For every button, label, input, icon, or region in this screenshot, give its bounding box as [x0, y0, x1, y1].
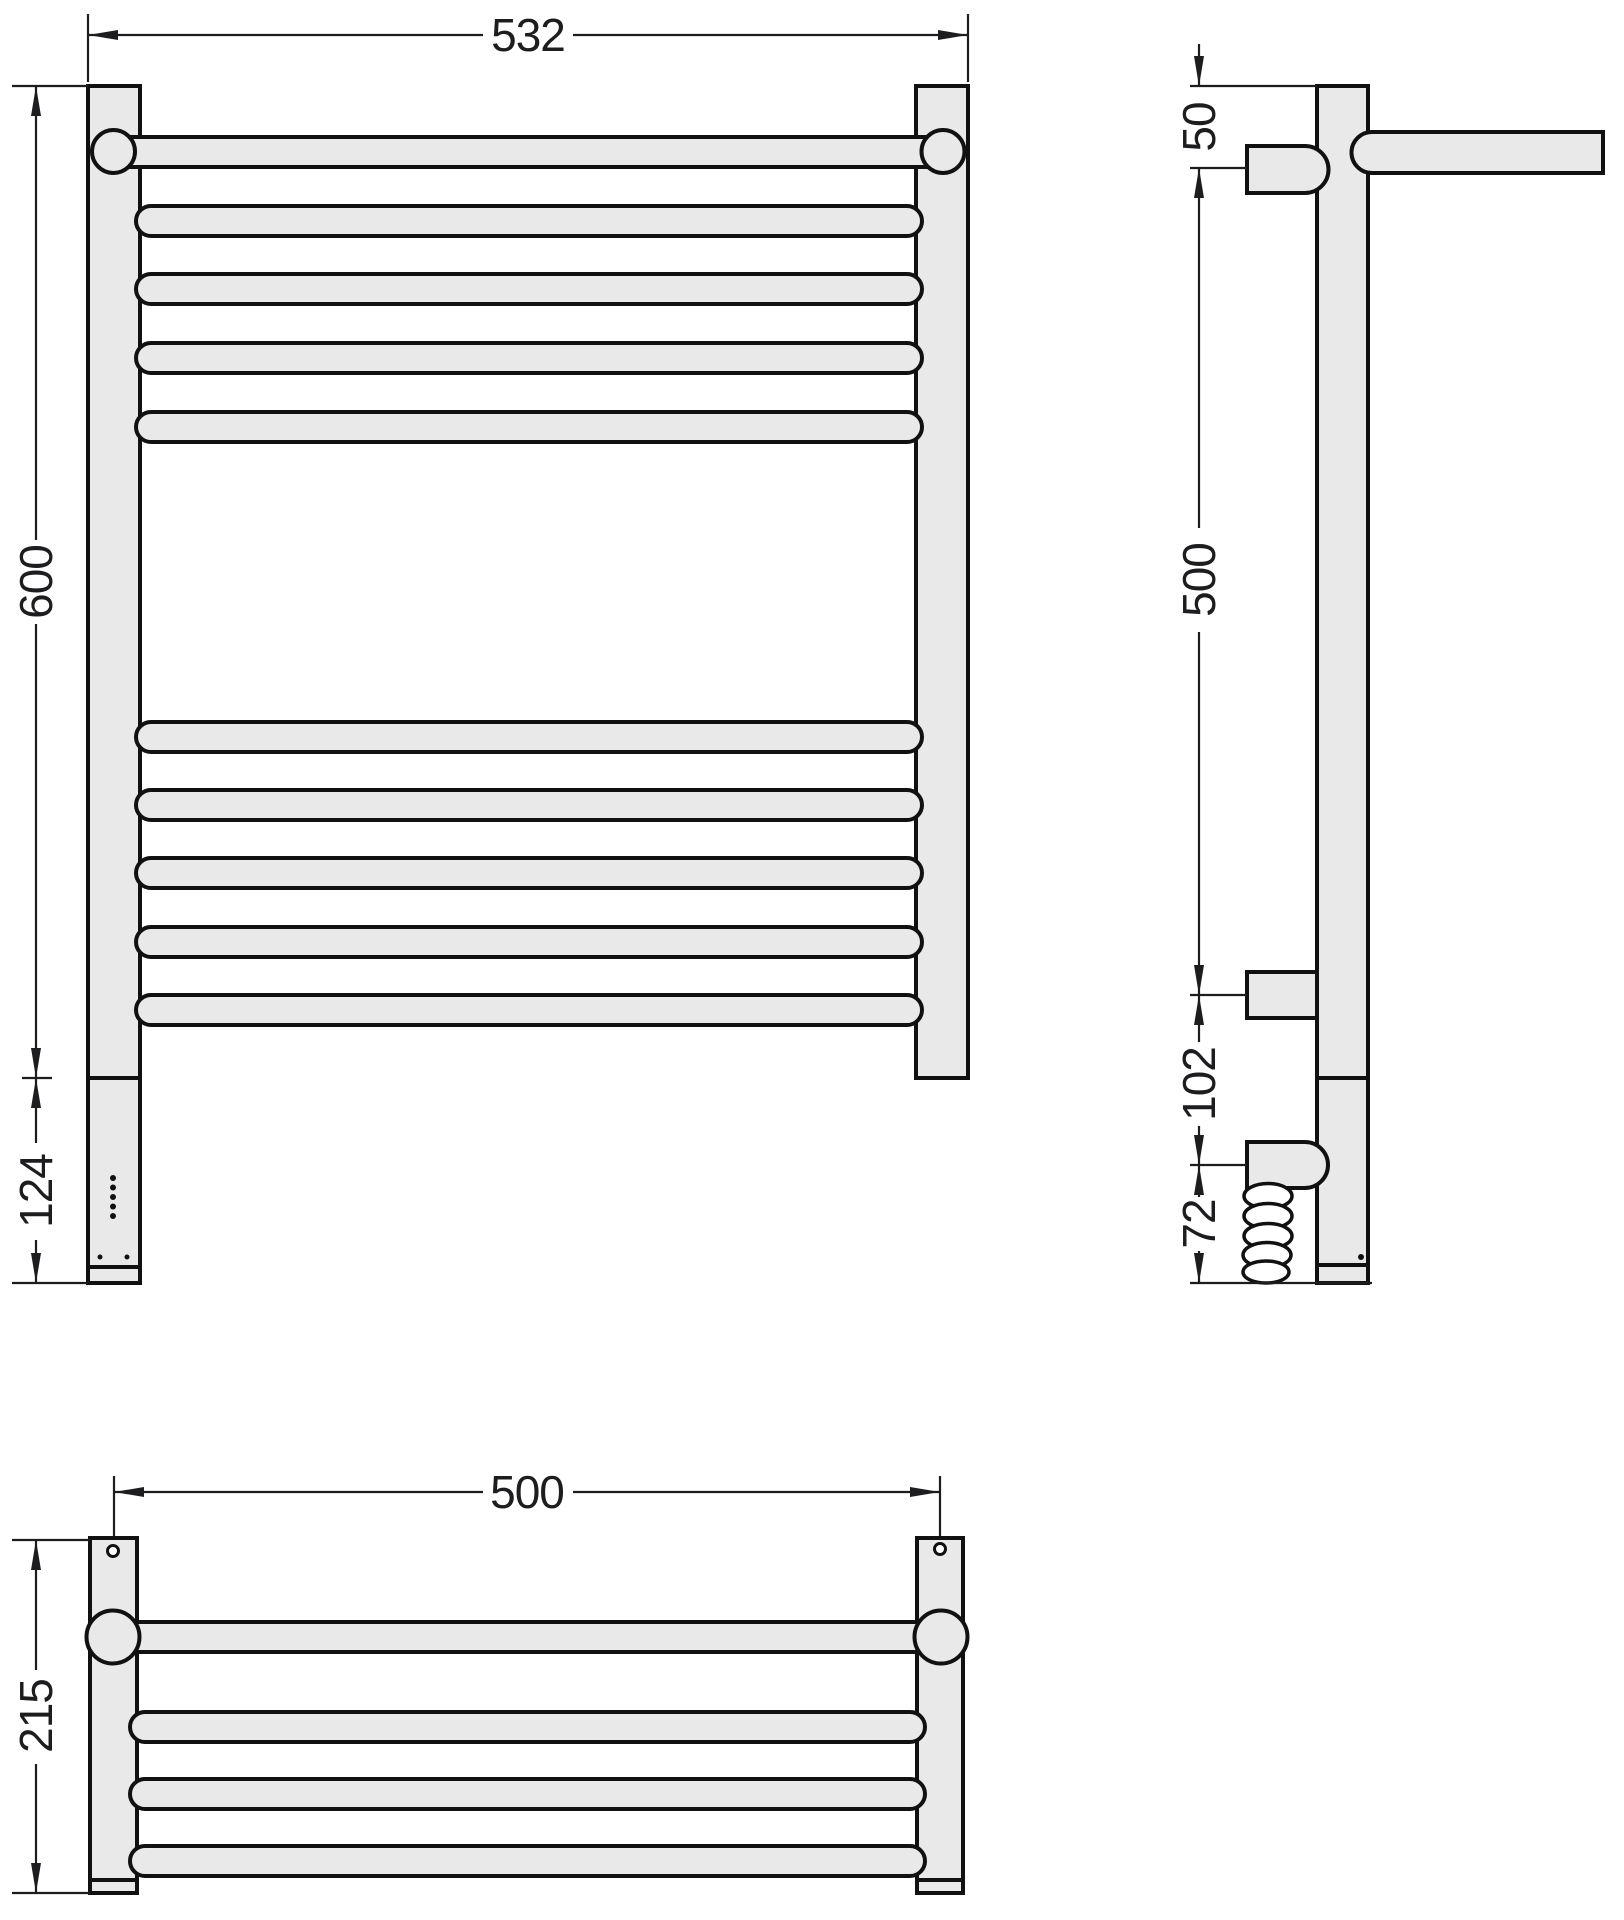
power-cable-coil [1243, 1184, 1292, 1284]
rung [136, 412, 922, 442]
dim-215-label: 215 [10, 1679, 62, 1753]
dim-72-label: 72 [1173, 1199, 1225, 1248]
dim-500-top-label: 500 [490, 1466, 564, 1518]
left-post-heater-section [88, 1078, 140, 1267]
dim-width-500: 500 [114, 1466, 940, 1536]
technical-drawing-page: 532 600 124 [0, 0, 1624, 1920]
rung [136, 927, 922, 957]
top-view-rail [120, 1622, 935, 1652]
rung [136, 790, 922, 820]
dim-600-label: 600 [10, 545, 62, 619]
rung [136, 722, 922, 752]
left-post [88, 86, 140, 1078]
side-top-rail [1352, 132, 1604, 173]
top-rail [120, 137, 932, 167]
rung [130, 1846, 925, 1876]
side-bottom-cap [1317, 1265, 1368, 1283]
right-collar [922, 130, 965, 173]
top-view-right-collar [915, 1611, 968, 1664]
rung [130, 1712, 925, 1742]
left-collar [92, 130, 135, 173]
wall-bracket-middle [1247, 972, 1317, 1018]
wall-bracket-top [1247, 146, 1329, 193]
dim-500-side-label: 500 [1173, 543, 1225, 617]
dim-102-label: 102 [1173, 1047, 1225, 1121]
dim-bottom-124: 124 [10, 1078, 88, 1283]
wall-bracket-bottom [1247, 1142, 1328, 1188]
rung [130, 1779, 925, 1809]
rung [136, 206, 922, 236]
side-view: 50 500 102 72 [1173, 44, 1603, 1283]
mounting-hole-left [108, 1546, 119, 1557]
dim-width-532: 532 [88, 9, 968, 82]
rung [136, 343, 922, 373]
left-post-bottom-cap [88, 1267, 140, 1283]
dim-50-label: 50 [1173, 102, 1225, 151]
top-view-right-post [917, 1538, 963, 1880]
top-view: 500 215 [10, 1466, 968, 1893]
top-view-left-collar [87, 1611, 140, 1664]
mounting-hole-right [935, 1544, 946, 1555]
top-view-right-cap [917, 1880, 963, 1893]
top-view-left-post [90, 1538, 137, 1880]
dim-532-label: 532 [491, 9, 565, 61]
front-view: 532 600 124 [10, 9, 968, 1283]
rung [136, 995, 922, 1025]
rung [136, 274, 922, 304]
dim-124-label: 124 [10, 1154, 62, 1228]
top-view-left-cap [90, 1880, 137, 1893]
right-post [916, 86, 968, 1078]
side-post [1317, 86, 1368, 1078]
dim-depth-215: 215 [10, 1540, 90, 1893]
towel-rail-drawing: 532 600 124 [0, 0, 1624, 1920]
rung [136, 858, 922, 888]
side-fastener-dot [1358, 1254, 1364, 1260]
dim-height-600: 600 [10, 86, 88, 1078]
